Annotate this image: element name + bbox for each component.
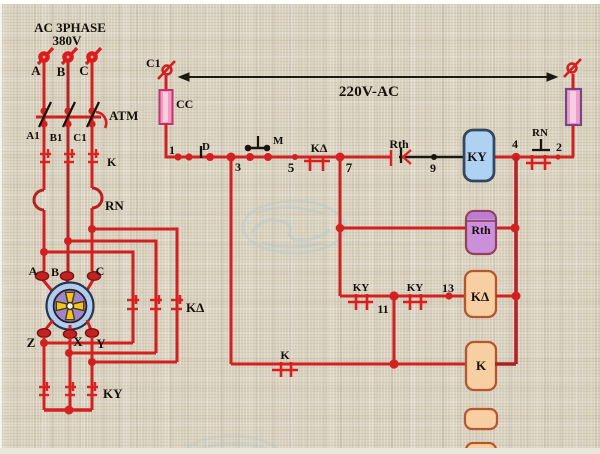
svg-text:C1: C1	[146, 56, 161, 70]
svg-text:RN: RN	[532, 127, 548, 139]
svg-text:Rth: Rth	[471, 223, 491, 237]
svg-text:KΔ: KΔ	[311, 141, 328, 155]
svg-text:A: A	[29, 264, 38, 278]
svg-text:KY: KY	[353, 282, 370, 294]
svg-text:M: M	[273, 135, 284, 147]
svg-text:KY: KY	[103, 386, 123, 401]
svg-text:K: K	[476, 358, 487, 373]
svg-text:C: C	[96, 264, 105, 278]
svg-text:KΔ: KΔ	[186, 300, 204, 315]
svg-text:C1: C1	[73, 132, 86, 144]
svg-text:B: B	[57, 64, 66, 79]
svg-text:5: 5	[288, 160, 295, 175]
svg-text:Rth: Rth	[389, 137, 409, 151]
svg-text:Y: Y	[96, 336, 106, 351]
svg-text:ATM: ATM	[109, 108, 138, 123]
svg-text:A1: A1	[26, 130, 39, 142]
svg-text:4: 4	[512, 137, 518, 151]
svg-text:Z: Z	[27, 335, 36, 350]
svg-text:KY: KY	[467, 149, 487, 164]
svg-text:X: X	[73, 334, 83, 349]
svg-text:380V: 380V	[53, 33, 83, 48]
svg-text:D: D	[202, 141, 210, 153]
svg-text:9: 9	[430, 161, 436, 175]
svg-text:K: K	[280, 348, 290, 362]
svg-text:2: 2	[556, 140, 562, 154]
svg-text:7: 7	[346, 160, 353, 175]
svg-text:KY: KY	[407, 282, 424, 294]
svg-text:1: 1	[169, 143, 175, 157]
svg-text:220V-AC: 220V-AC	[339, 84, 399, 100]
svg-text:3: 3	[235, 160, 241, 174]
svg-text:CC: CC	[176, 97, 193, 111]
svg-text:K: K	[107, 155, 117, 169]
svg-text:KΔ: KΔ	[471, 289, 489, 304]
svg-text:A: A	[31, 63, 41, 78]
svg-text:11: 11	[377, 302, 388, 316]
svg-text:C: C	[79, 63, 88, 78]
svg-text:RN: RN	[105, 198, 124, 213]
svg-text:B: B	[51, 265, 59, 279]
svg-text:B1: B1	[50, 132, 63, 144]
